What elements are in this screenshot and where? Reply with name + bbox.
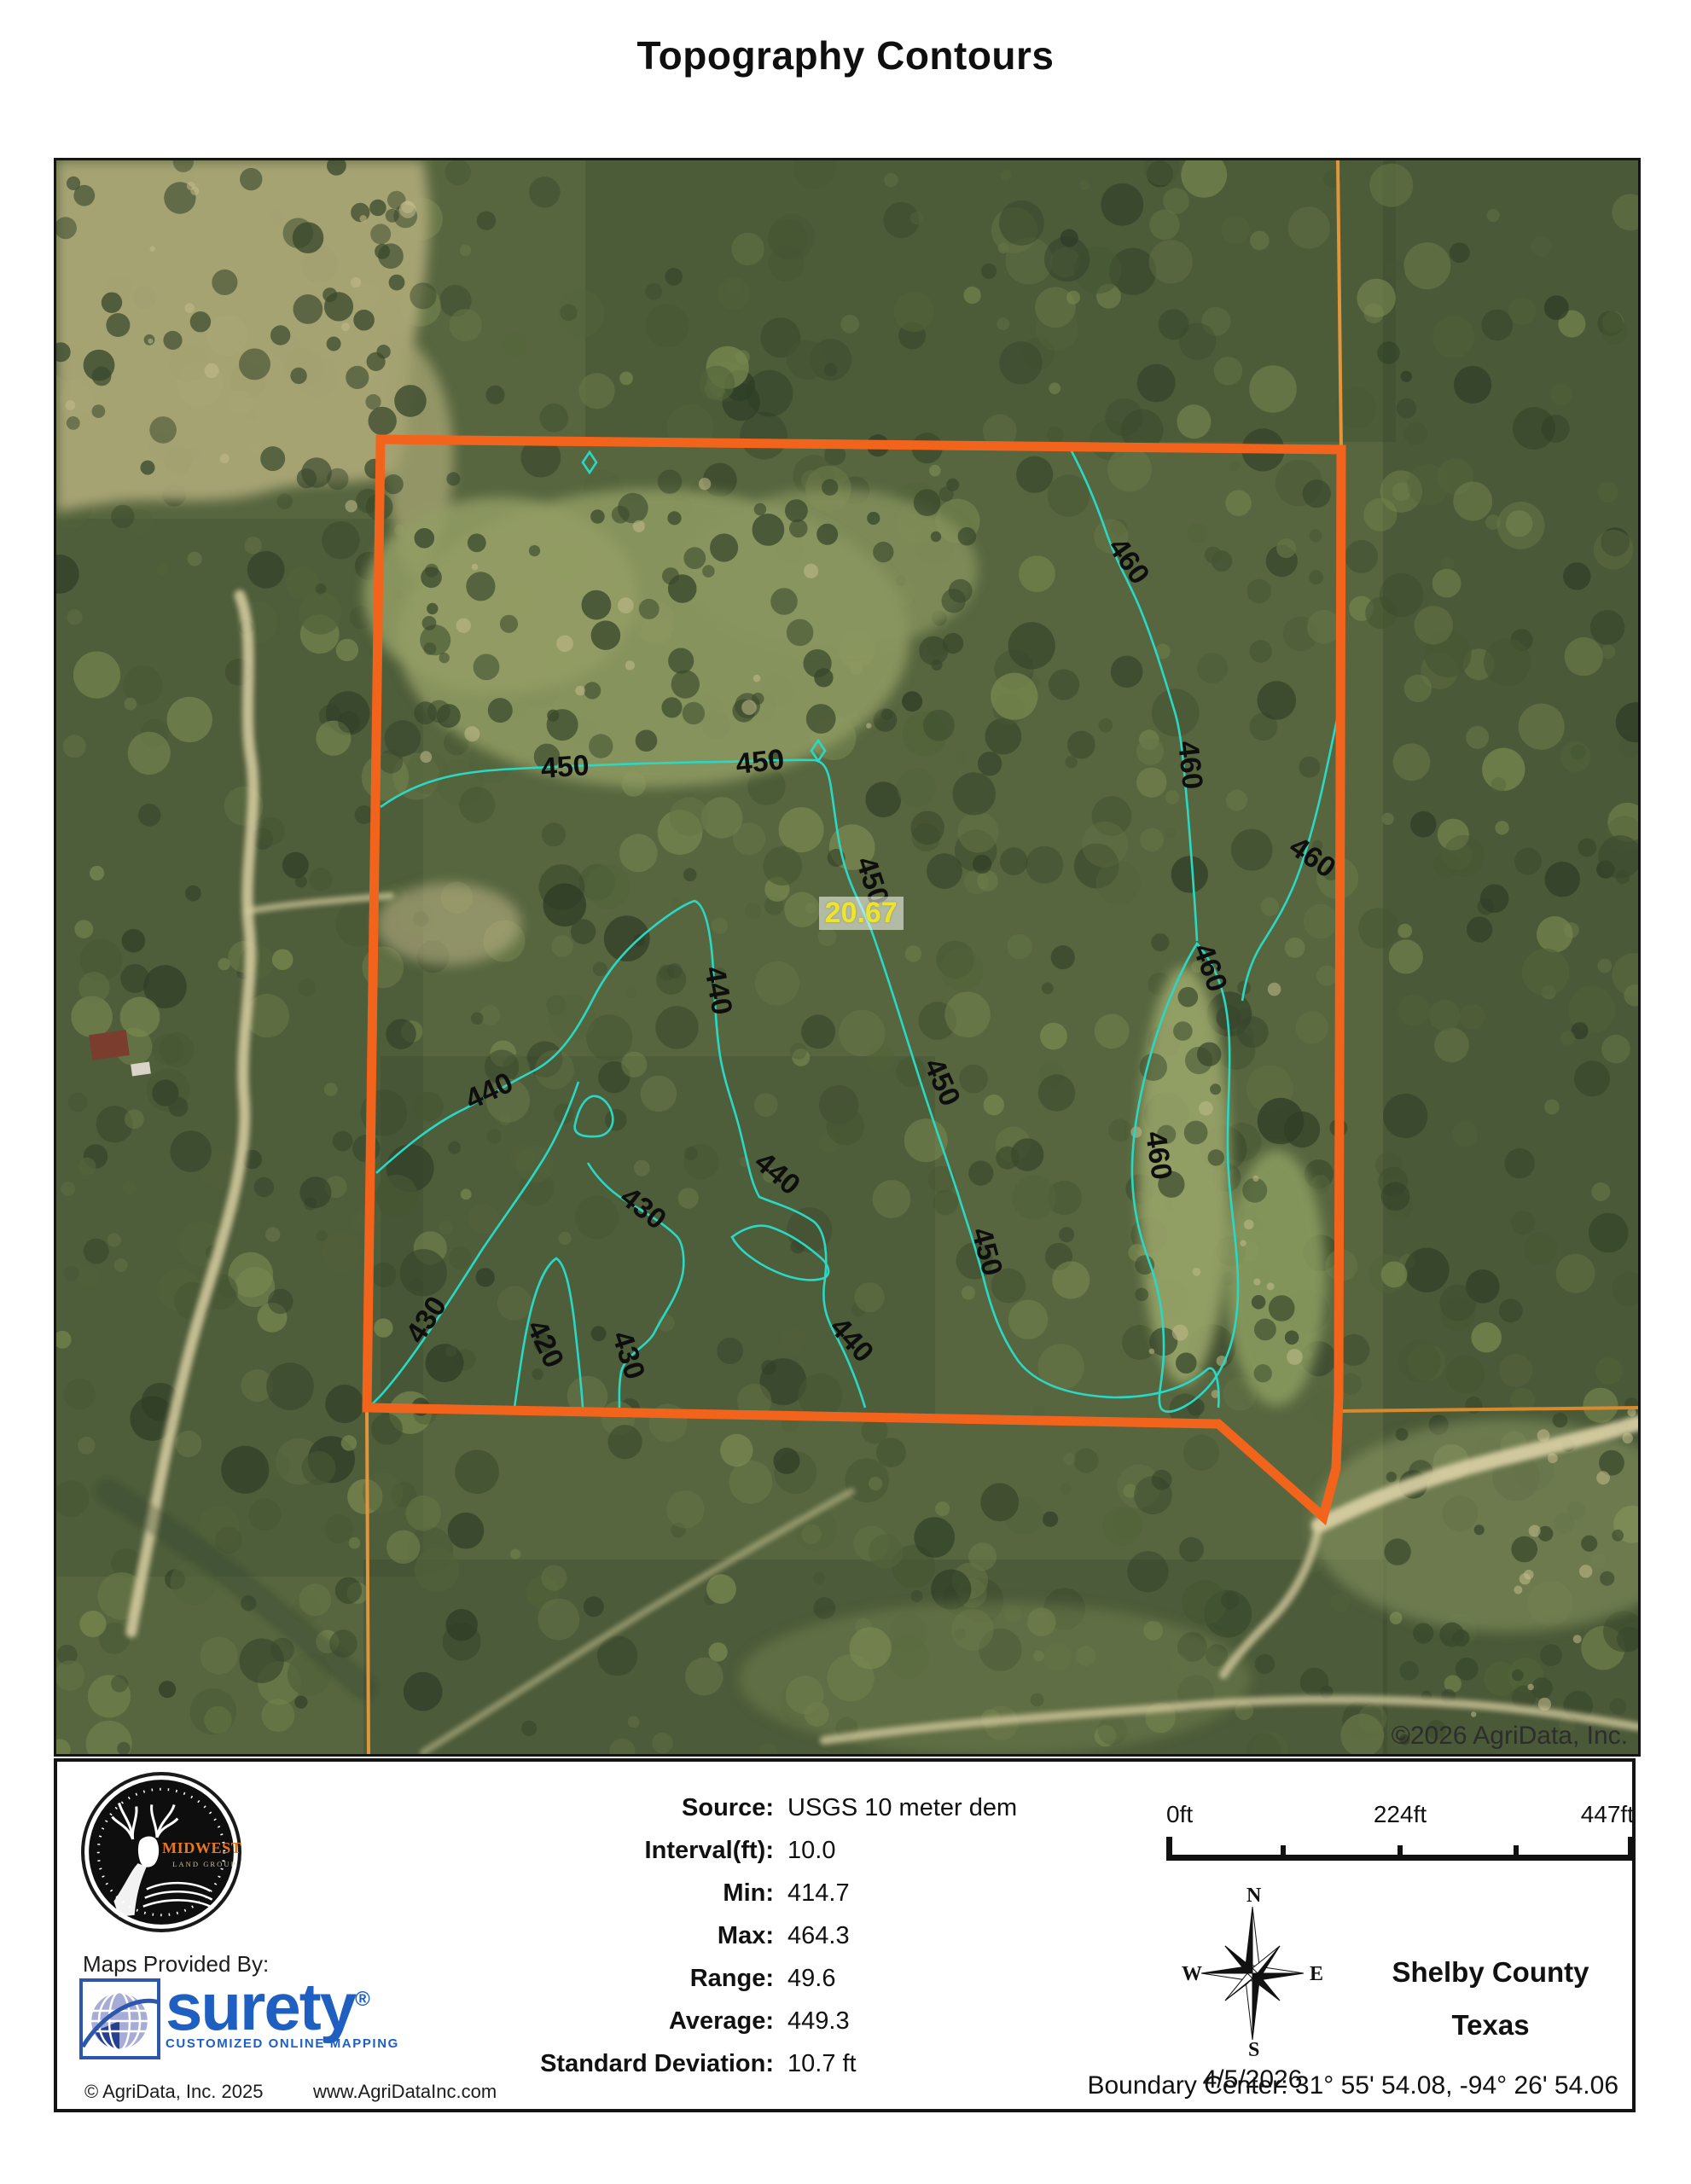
- agridata-url[interactable]: www.AgriDataInc.com: [313, 2081, 497, 2103]
- stat-value: 49.6: [774, 1965, 835, 1993]
- stat-row: Min:414.7: [501, 1879, 1098, 1908]
- contour-elevation-label: 460: [1139, 1130, 1178, 1182]
- surety-tagline: CUSTOMIZED ONLINE MAPPING: [166, 2036, 399, 2051]
- map-area: 4504504504504504604604604604604404404404…: [54, 158, 1641, 1757]
- logo-sub-text: LAND GROUP: [172, 1860, 236, 1868]
- compass-rose: N E S W: [1180, 1888, 1325, 2059]
- contour-elevation-label: 460: [1171, 740, 1209, 791]
- compass-east-label: E: [1310, 1963, 1323, 1986]
- stat-label: Standard Deviation:: [501, 2050, 774, 2078]
- stat-value: 10.0: [774, 1837, 835, 1865]
- agridata-copyright: © AgriData, Inc. 2025: [84, 2081, 263, 2103]
- stat-row: Interval(ft):10.0: [501, 1837, 1098, 1865]
- stat-row: Average:449.3: [501, 2007, 1098, 2036]
- stat-row: Range:49.6: [501, 1965, 1098, 1993]
- scale-end-label: 447ft: [1581, 1801, 1634, 1828]
- stat-label: Max:: [501, 1922, 774, 1950]
- surety-globe-icon: [79, 1978, 160, 2059]
- footer-panel: MIDWEST LAND GROUP Maps Provided By:: [54, 1758, 1636, 2112]
- aerial-map-image: 4504504504504504604604604604604404404404…: [56, 160, 1638, 1754]
- county-name: Shelby County: [1384, 1956, 1597, 1989]
- logo-brand-text: MIDWEST: [162, 1839, 241, 1856]
- scalebar: [1166, 1837, 1634, 1861]
- surety-name: surety: [166, 1969, 355, 2044]
- stat-value: 449.3: [774, 2007, 850, 2036]
- contour-elevation-label: 450: [540, 749, 590, 785]
- stat-label: Average:: [501, 2007, 774, 2036]
- stat-label: Interval(ft):: [501, 1837, 774, 1865]
- stat-value: 10.7 ft: [774, 2050, 857, 2078]
- stat-row: Standard Deviation:10.7 ft: [501, 2050, 1098, 2078]
- acreage-label: 20.67: [819, 897, 904, 930]
- stat-label: Range:: [501, 1965, 774, 1993]
- page-title: Topography Contours: [0, 32, 1691, 78]
- scale-mid-label: 224ft: [1166, 1801, 1634, 1828]
- map-copyright: ©2026 AgriData, Inc.: [1392, 1722, 1628, 1750]
- contour-elevation-label: 450: [735, 743, 786, 781]
- compass-north-label: N: [1246, 1885, 1261, 1908]
- stat-row: Source:USGS 10 meter dem: [501, 1794, 1098, 1822]
- surety-logo: surety® CUSTOMIZED ONLINE MAPPING: [79, 1978, 399, 2059]
- scalebar-labels: 0ft 224ft 447ft: [1166, 1801, 1634, 1830]
- deer-head-icon: [138, 1837, 159, 1867]
- stat-label: Min:: [501, 1879, 774, 1908]
- stat-value: 414.7: [774, 1879, 850, 1908]
- stat-label: Source:: [501, 1794, 774, 1822]
- midwest-land-group-logo: MIDWEST LAND GROUP: [79, 1770, 243, 1934]
- compass-west-label: W: [1182, 1963, 1202, 1986]
- stat-value: USGS 10 meter dem: [774, 1794, 1017, 1822]
- report-page: Topography Contours: [0, 0, 1691, 2184]
- county-block: Shelby County Texas: [1384, 1956, 1597, 2042]
- boundary-center-label: Boundary Center: 31° 55' 54.08, -94° 26'…: [1087, 2071, 1618, 2100]
- stat-value: 464.3: [774, 1922, 850, 1950]
- elevation-stats-table: Source:USGS 10 meter demInterval(ft):10.…: [501, 1794, 1098, 2093]
- surety-registered-mark: ®: [355, 1988, 370, 2011]
- stat-row: Max:464.3: [501, 1922, 1098, 1950]
- compass-south-label: S: [1248, 2039, 1259, 2062]
- state-name: Texas: [1384, 2009, 1597, 2042]
